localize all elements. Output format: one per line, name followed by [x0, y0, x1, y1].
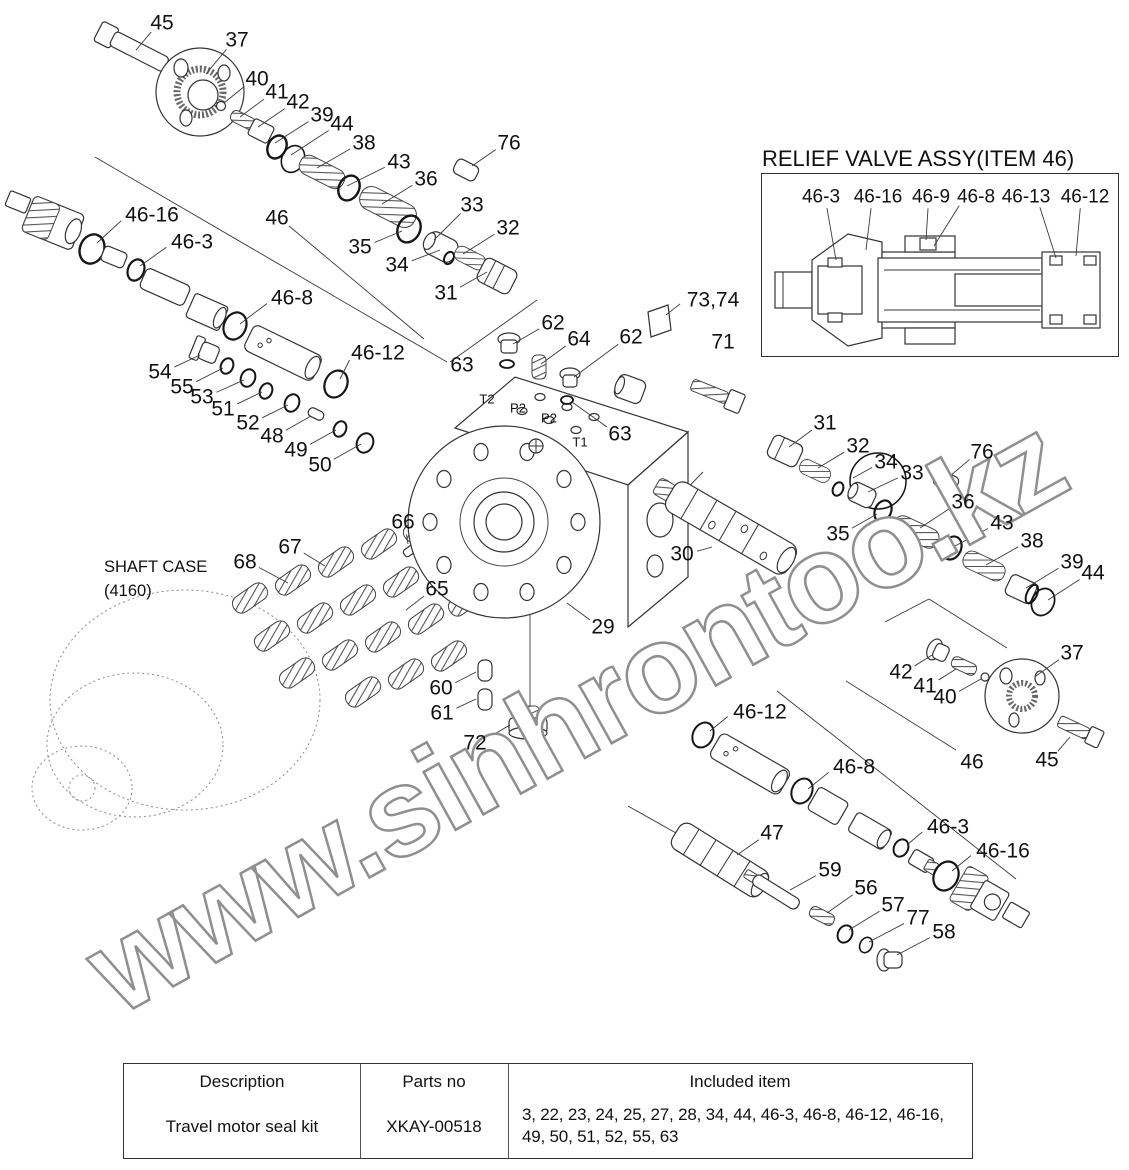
part-label-62: 62: [541, 313, 564, 334]
part-label-31: 31: [434, 283, 457, 304]
tube: [139, 267, 192, 307]
ball-40b: [981, 673, 989, 681]
pin-60: [478, 660, 492, 681]
part-label-t1: T1: [572, 436, 587, 449]
part-label-46-3: 46-3: [802, 188, 840, 207]
plug-63: [612, 373, 647, 405]
part-label-53: 53: [190, 387, 213, 408]
table-divider: [360, 1064, 361, 1158]
bolt-45b: [1055, 713, 1104, 749]
plug-62a: [498, 333, 520, 353]
oring-49: [331, 419, 348, 438]
plug-58: [877, 949, 902, 971]
top-left-parts-chain: [93, 21, 519, 296]
part-label-45: 45: [150, 13, 173, 34]
oring-52: [282, 392, 302, 414]
part-label-72: 72: [463, 733, 486, 754]
bolt-71: [688, 375, 746, 414]
part-label-63: 63: [608, 424, 631, 445]
plug-62b: [560, 368, 580, 387]
part-label-46-16: 46-16: [125, 205, 179, 226]
part-label-58: 58: [932, 922, 955, 943]
table-divider: [508, 1064, 509, 1158]
part-label-76: 76: [497, 133, 520, 154]
part-label-35: 35: [826, 524, 849, 545]
part-label-41: 41: [265, 82, 288, 103]
part-label-54: 54: [148, 362, 171, 383]
part-label-46-3: 46-3: [171, 232, 213, 253]
col-header-description: Description: [124, 1064, 360, 1096]
part-label-31: 31: [813, 413, 836, 434]
part-label-46-12: 46-12: [351, 343, 405, 364]
part-label-35: 35: [348, 237, 371, 258]
fitting-46: [21, 195, 87, 251]
part-label-76: 76: [970, 442, 993, 463]
part-label-42: 42: [889, 662, 912, 683]
part-label-46-8: 46-8: [271, 288, 313, 309]
part-label-64: 64: [567, 329, 590, 350]
plug: [100, 245, 128, 269]
cap-39b: [1004, 573, 1041, 606]
oring-55: [218, 356, 235, 375]
part-label-63: 63: [450, 355, 473, 376]
oring-46-3b: [891, 837, 911, 859]
oring-46-12: [320, 367, 352, 402]
part-label-71: 71: [711, 332, 734, 353]
part-label-46-12: 46-12: [733, 702, 787, 723]
part-label-33: 33: [900, 463, 923, 484]
exploded-parts-diagram: www.sinhrontoo.kz 4537404142394438433633…: [0, 0, 1129, 1170]
part-label-49: 49: [284, 440, 307, 461]
cell-included-item: 3, 22, 23, 24, 25, 27, 28, 34, 44, 46-3,…: [508, 1096, 972, 1158]
part-label-77: 77: [906, 908, 929, 929]
flange-37b: [985, 659, 1059, 733]
cell-description: Travel motor seal kit: [124, 1096, 360, 1158]
part-label-46-8: 46-8: [833, 757, 875, 778]
part-label-36: 36: [414, 169, 437, 190]
part-label-46: 46: [265, 208, 288, 229]
nut-46b: [1002, 902, 1030, 929]
part-label-36: 36: [951, 492, 974, 513]
plug-46-3b: [907, 849, 940, 877]
part-label-34: 34: [385, 255, 408, 276]
part-label-46-8: 46-8: [957, 188, 995, 207]
col-header-parts-no: Parts no: [360, 1064, 508, 1096]
part-label-42: 42: [286, 92, 309, 113]
part-label-46-9: 46-9: [912, 188, 950, 207]
plug-54: [189, 335, 222, 367]
part-label-44: 44: [330, 114, 353, 135]
ring-57: [835, 923, 855, 945]
plate-73-74: [648, 305, 671, 337]
part-label-32: 32: [846, 436, 869, 457]
sleeve-46-3b: [847, 811, 894, 851]
spool-47: [668, 820, 773, 901]
cell-parts-no: XKAY-00518: [360, 1096, 508, 1158]
part-label-46-16: 46-16: [854, 188, 903, 207]
part-label-relief-valve-assy-item-46-: RELIEF VALVE ASSY(ITEM 46): [762, 148, 1074, 170]
part-label-37: 37: [1060, 643, 1083, 664]
oring-77: [857, 935, 875, 955]
part-label-t2: T2: [479, 393, 494, 406]
part-label-43: 43: [990, 513, 1013, 534]
flange-37: [156, 48, 244, 136]
part-label-57: 57: [881, 895, 904, 916]
spring-64: [532, 355, 546, 379]
spring-36: [356, 183, 420, 232]
part-label-32: 32: [496, 218, 519, 239]
part-label-33: 33: [460, 195, 483, 216]
spring-56: [808, 905, 837, 927]
part-label-66: 66: [391, 512, 414, 533]
part-label-60: 60: [429, 678, 452, 699]
part-label-67: 67: [278, 537, 301, 558]
part-label-62: 62: [619, 327, 642, 348]
part-label-59: 59: [818, 860, 841, 881]
part-label-45: 45: [1035, 750, 1058, 771]
part-label-56: 56: [854, 878, 877, 899]
part-label-34: 34: [874, 452, 897, 473]
part-label-p2: P2: [510, 402, 526, 415]
part-label-73-74: 73,74: [687, 290, 740, 311]
oring-63a: [500, 360, 514, 368]
oring-50: [354, 431, 377, 456]
nut: [5, 190, 31, 213]
part-label-46-12: 46-12: [1061, 188, 1110, 207]
part-label-51: 51: [211, 399, 234, 420]
spring-32b: [797, 457, 833, 485]
part-label-38: 38: [352, 133, 375, 154]
part-label-46-16: 46-16: [976, 841, 1030, 862]
spring-41b: [950, 655, 979, 677]
part-label-46: 46: [960, 752, 983, 773]
tube-46-12b: [708, 732, 791, 796]
part-label-40: 40: [933, 687, 956, 708]
parts-table: Description Parts no Included item Trave…: [123, 1063, 973, 1159]
part-label-38: 38: [1020, 531, 1043, 552]
part-label-44: 44: [1081, 563, 1104, 584]
col-header-included-item: Included item: [508, 1064, 972, 1096]
plug-31b: [765, 433, 804, 468]
part-label-37: 37: [225, 30, 248, 51]
pin-76: [452, 157, 481, 182]
part-label-p2: P2: [541, 412, 557, 425]
part-label-61: 61: [430, 703, 453, 724]
oring-53: [238, 367, 258, 389]
part-label-46-13: 46-13: [1002, 188, 1051, 207]
plug-42b: [924, 637, 952, 666]
part-label-46-3: 46-3: [927, 817, 969, 838]
part-label-68: 68: [233, 552, 256, 573]
part-label-29: 29: [591, 617, 614, 638]
part-label-65: 65: [425, 579, 448, 600]
part-label--4160-: (4160): [104, 583, 152, 600]
part-label-43: 43: [387, 152, 410, 173]
pin-48: [307, 406, 325, 421]
oring-51: [257, 381, 274, 400]
part-label-30: 30: [670, 544, 693, 565]
part-label-50: 50: [308, 455, 331, 476]
part-label-47: 47: [760, 823, 783, 844]
part-label-52: 52: [236, 413, 259, 434]
part-label-48: 48: [260, 426, 283, 447]
part-label-39: 39: [1060, 552, 1083, 573]
part-label-shaft-case: SHAFT CASE: [104, 559, 207, 576]
